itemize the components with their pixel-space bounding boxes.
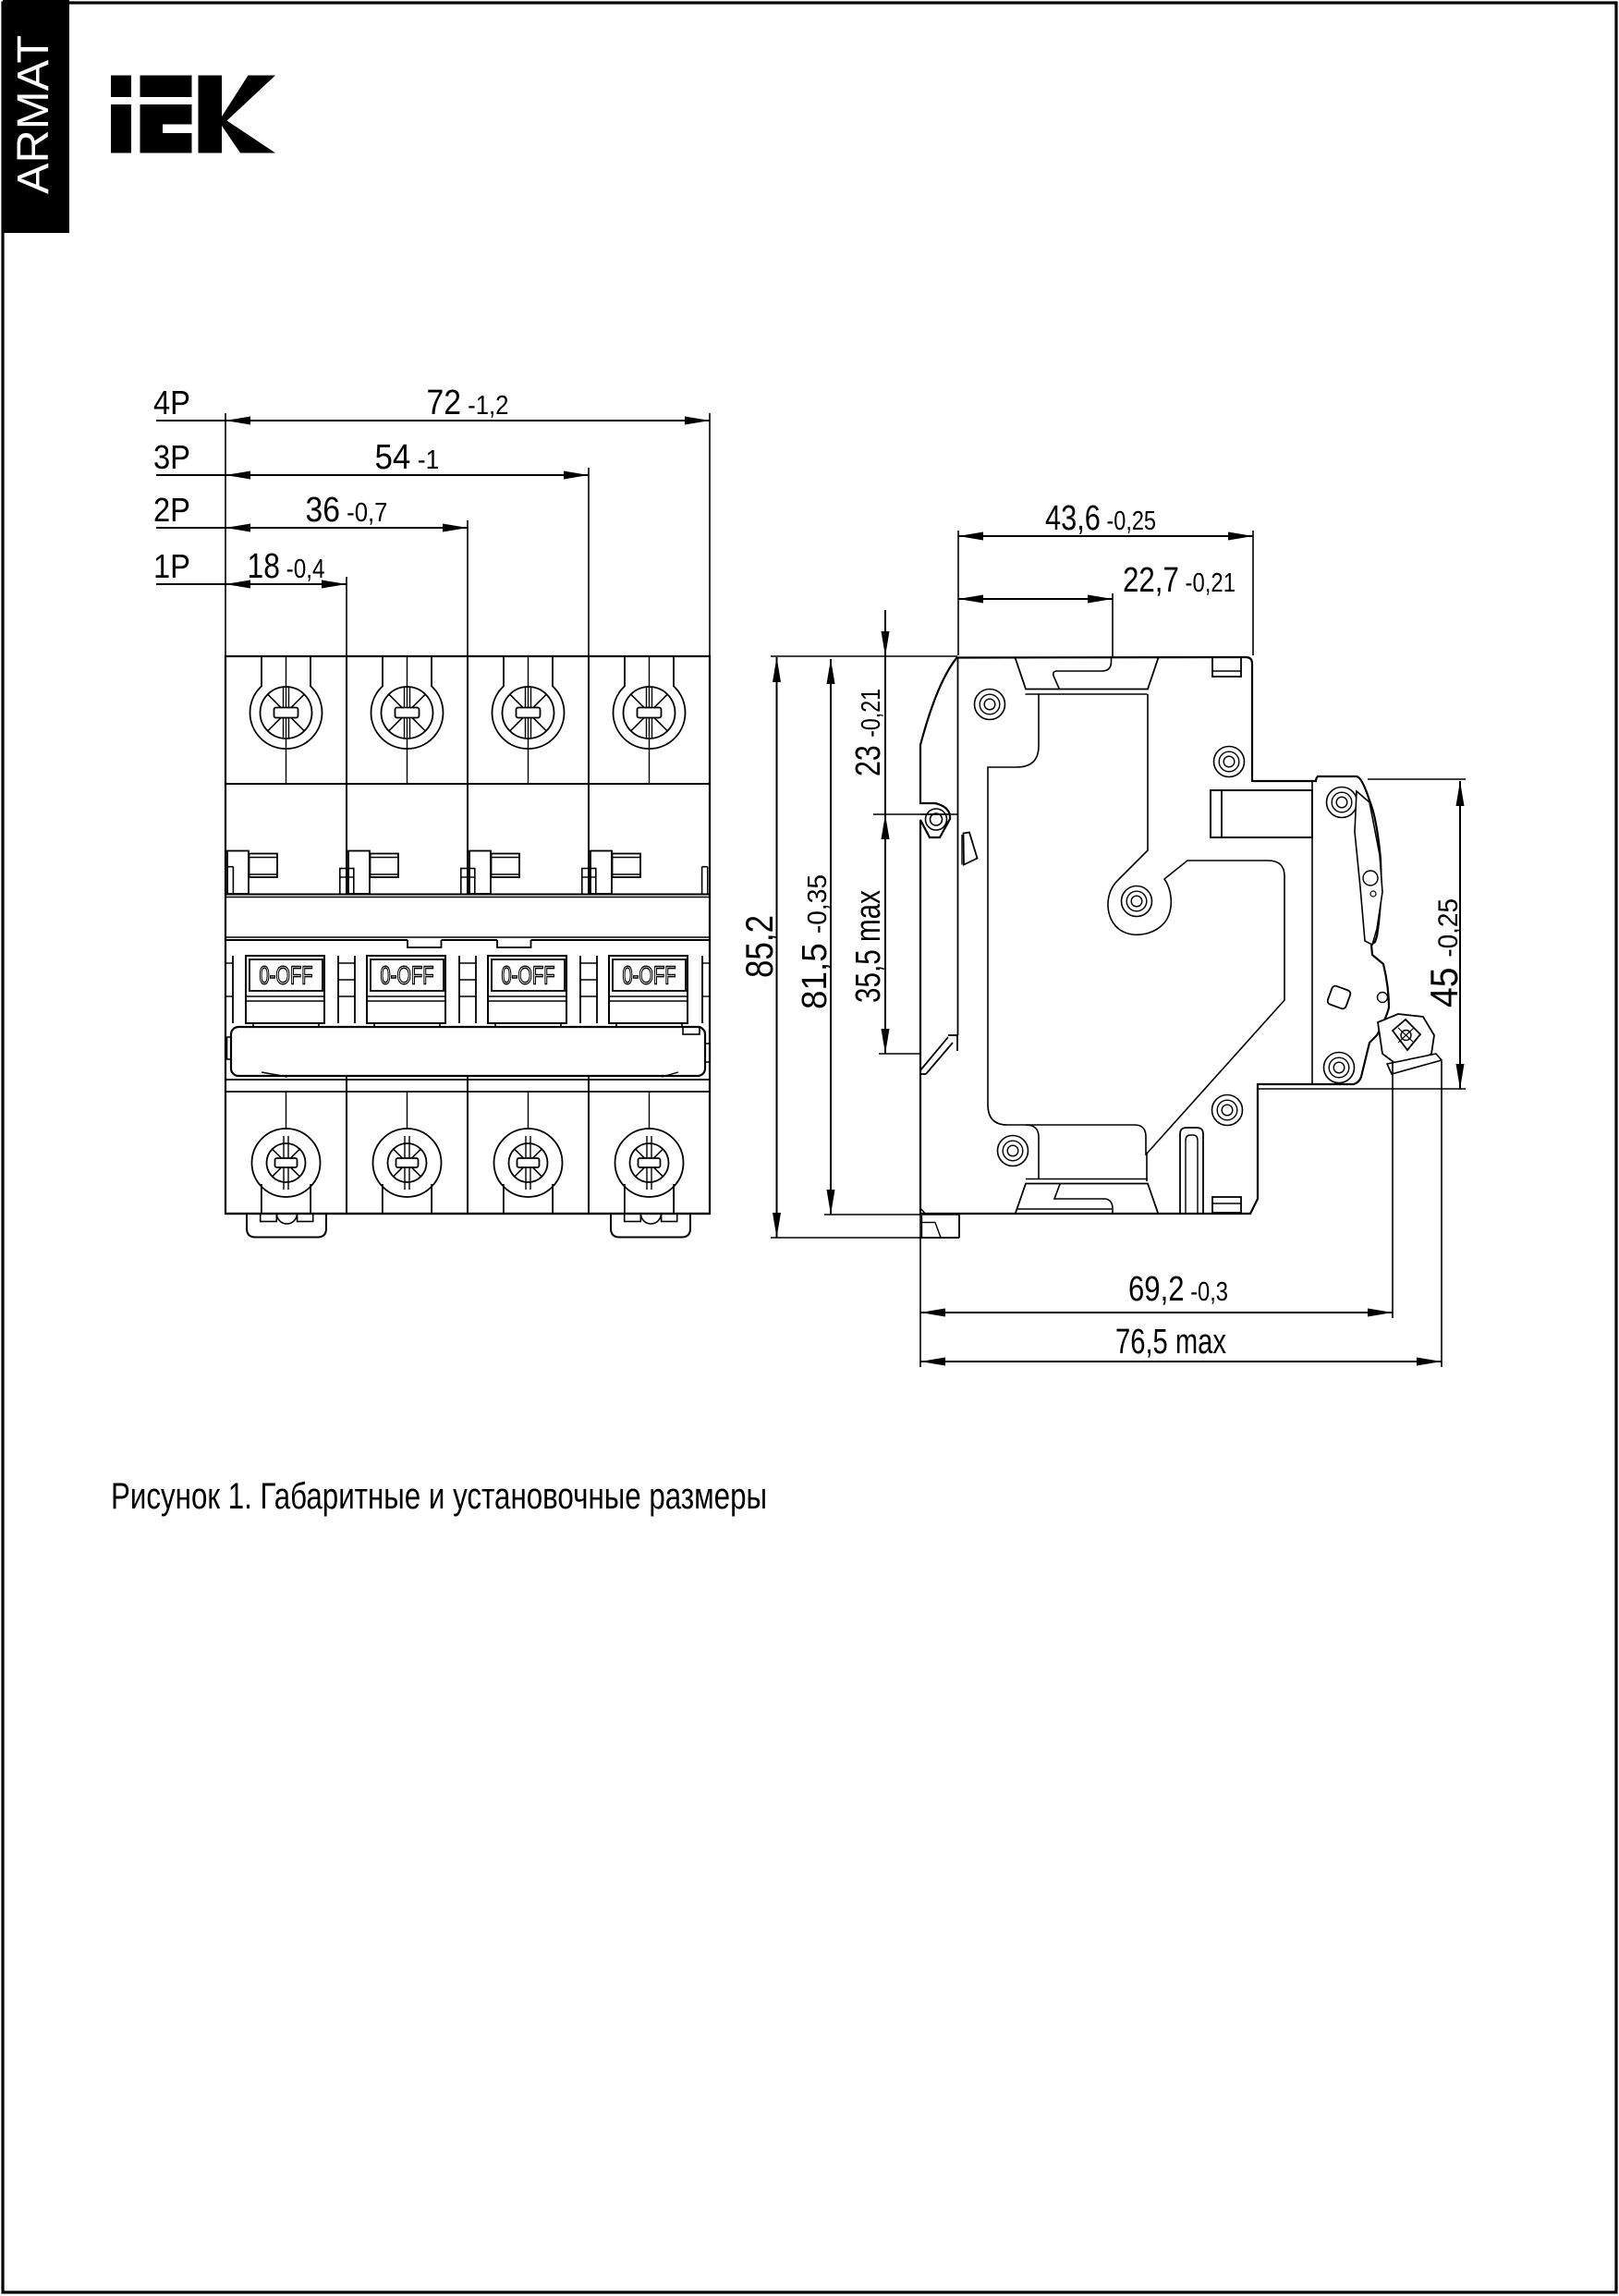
svg-text:85,2: 85,2 [737, 915, 781, 978]
svg-text:4P: 4P [153, 384, 190, 421]
svg-text:0-OFF: 0-OFF [623, 961, 676, 990]
svg-text:ARMAT: ARMAT [9, 35, 58, 194]
svg-text:76,5 max: 76,5 max [1115, 1323, 1226, 1362]
svg-text:2P: 2P [153, 491, 190, 529]
svg-text:Рисунок 1. Габаритные и устано: Рисунок 1. Габаритные и установочные раз… [111, 1476, 767, 1517]
svg-text:1P: 1P [153, 547, 190, 585]
svg-text:0-OFF: 0-OFF [260, 961, 313, 990]
svg-text:0-OFF: 0-OFF [502, 961, 555, 990]
svg-text:35,5 max: 35,5 max [849, 890, 888, 1003]
svg-text:3P: 3P [153, 438, 190, 476]
svg-text:0-OFF: 0-OFF [381, 961, 434, 990]
